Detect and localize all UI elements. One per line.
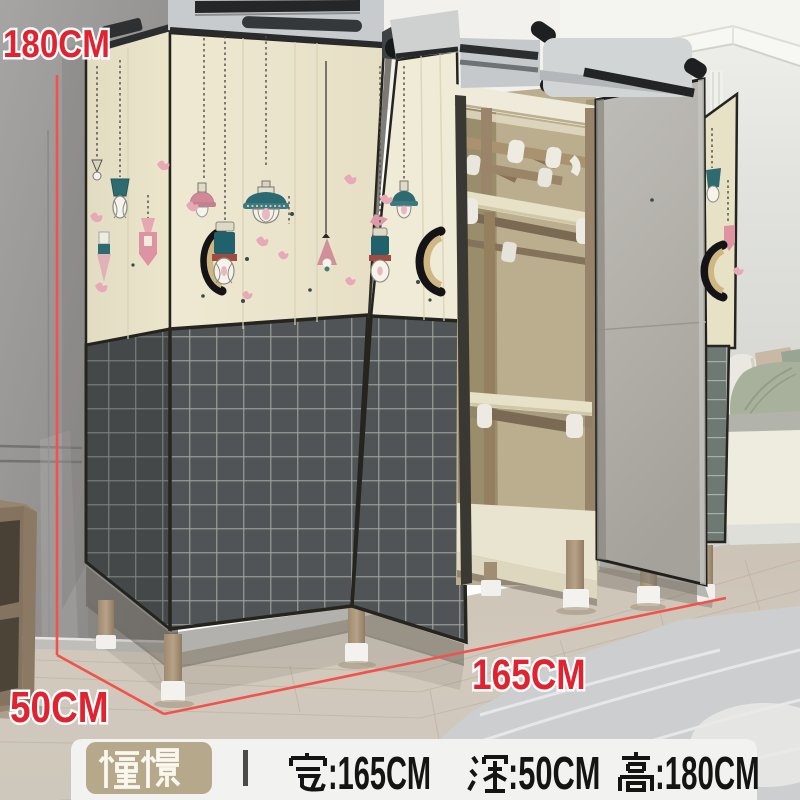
svg-text::180CM: :180CM	[655, 749, 760, 800]
svg-text:50CM: 50CM	[10, 682, 109, 732]
svg-text:165CM: 165CM	[472, 651, 586, 699]
svg-text:180CM: 180CM	[3, 21, 110, 65]
svg-text::50CM: :50CM	[508, 749, 600, 800]
svg-text::165CM: :165CM	[328, 748, 431, 799]
